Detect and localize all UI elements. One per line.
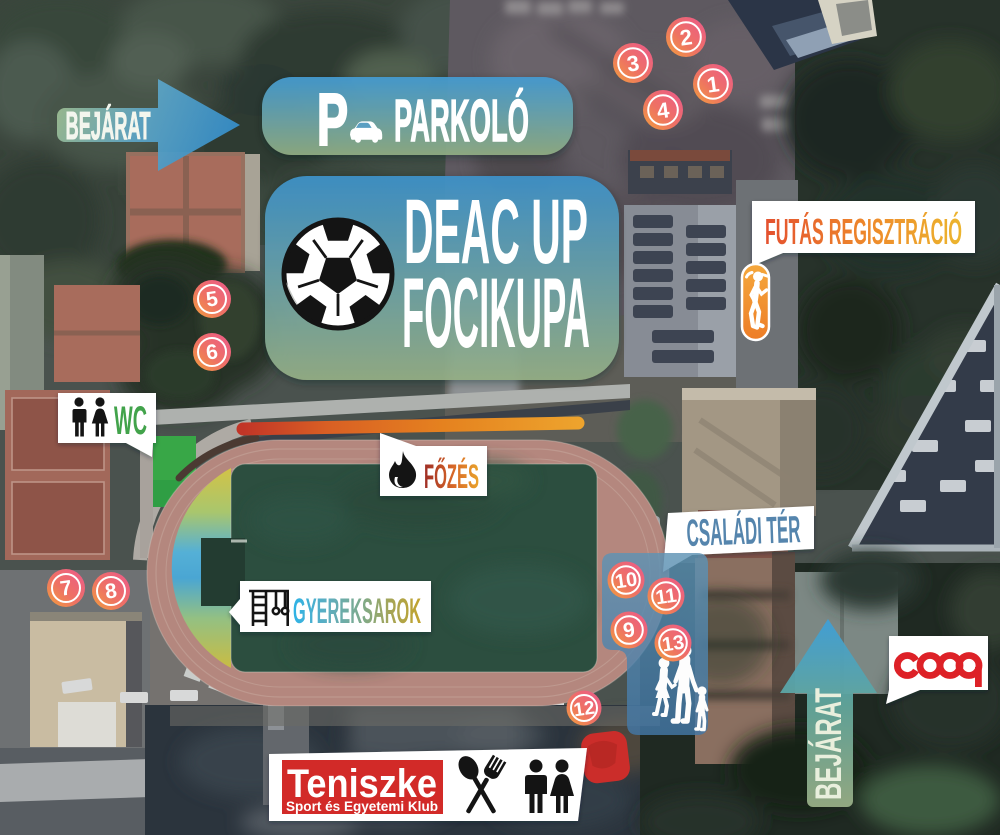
svg-text:12: 12 <box>572 698 596 722</box>
svg-text:WC: WC <box>114 399 147 443</box>
svg-text:BEJÁRAT: BEJÁRAT <box>66 104 151 148</box>
svg-text:10: 10 <box>614 569 639 594</box>
svg-text:13: 13 <box>661 632 686 657</box>
svg-text:BEJÁRAT: BEJÁRAT <box>808 688 849 800</box>
svg-text:GYEREKSAROK: GYEREKSAROK <box>293 592 421 631</box>
svg-text:FOCIKUPA: FOCIKUPA <box>402 257 590 368</box>
svg-text:FUTÁS REGISZTRÁCIÓ: FUTÁS REGISZTRÁCIÓ <box>765 210 962 252</box>
svg-text:FŐZÉS: FŐZÉS <box>424 458 479 496</box>
svg-text:11: 11 <box>654 585 678 610</box>
svg-text:P: P <box>317 80 348 161</box>
svg-text:PARKOLÓ: PARKOLÓ <box>394 88 529 154</box>
svg-text:CSALÁDI TÉR: CSALÁDI TÉR <box>686 507 801 555</box>
svg-text:Sport és Egyetemi Klub: Sport és Egyetemi Klub <box>286 798 438 814</box>
